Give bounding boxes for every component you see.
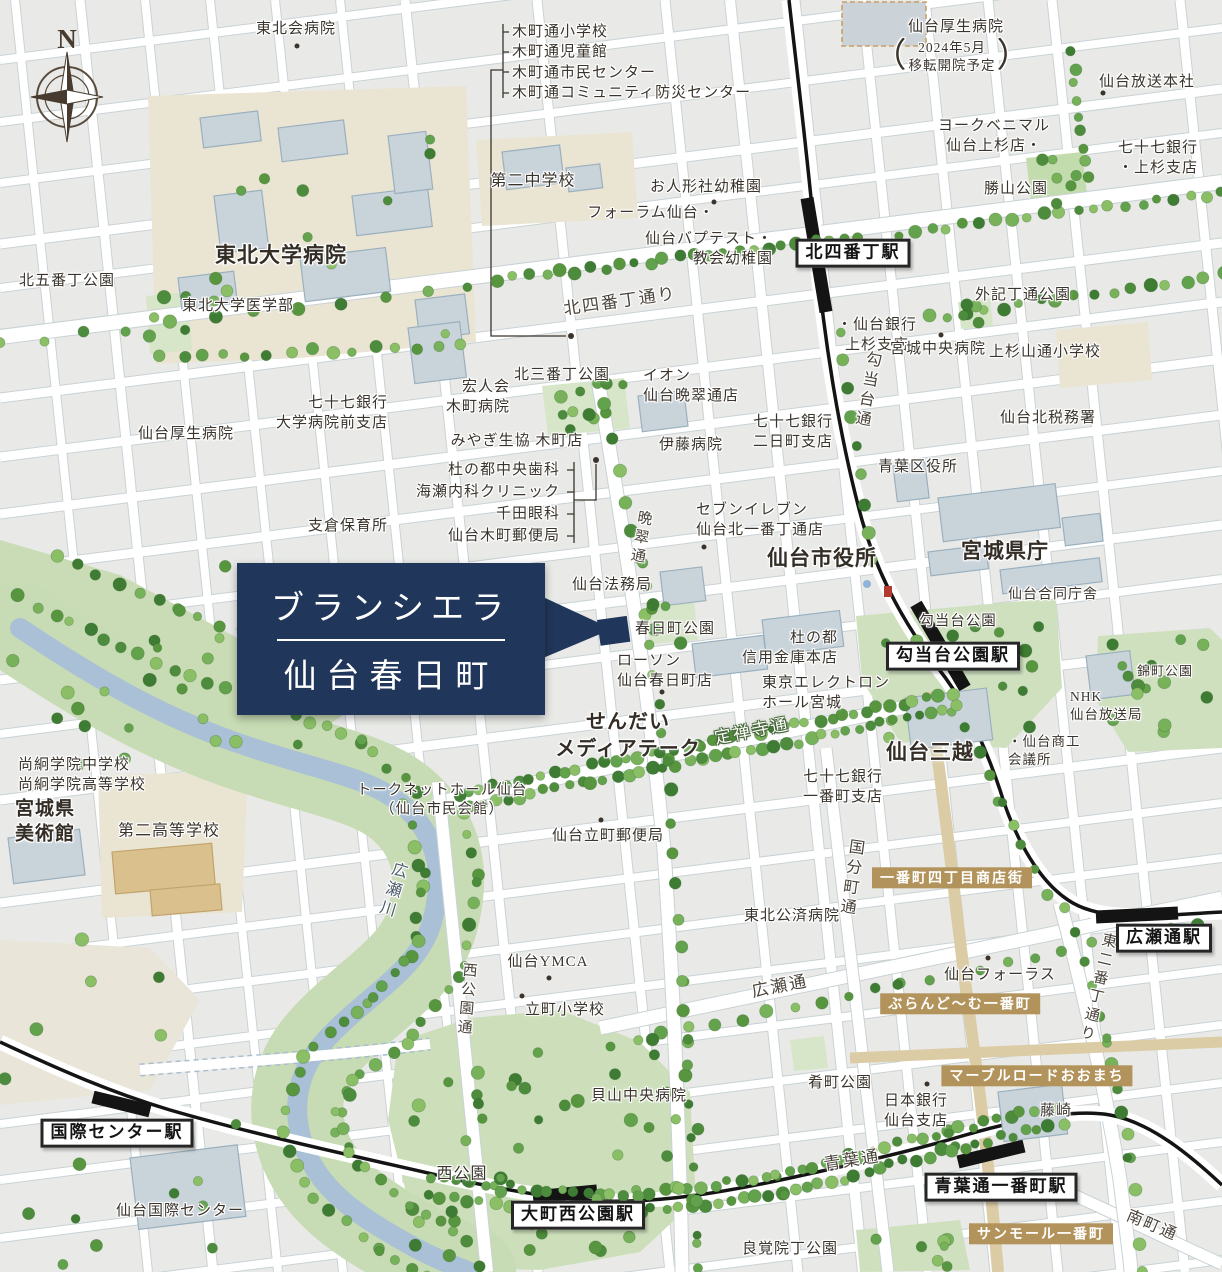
arc-marble-road-omachi-badge: マーブルロードおおまち — [941, 1065, 1132, 1086]
clinics-group-dot — [593, 457, 599, 463]
sta-omachi-nishikoen-badge: 大町西公園駅 — [511, 1201, 645, 1230]
property-marker — [597, 616, 630, 646]
compass-n-label: N — [57, 24, 77, 54]
kimachi-group-dot — [568, 333, 574, 339]
sta-aobadori-ichibancho-badge: 青葉通一番町駅 — [925, 1173, 1078, 1202]
sta-kita-yobancho-badge: 北四番丁駅 — [796, 239, 911, 268]
station-mark-2 — [1096, 913, 1178, 917]
sta-kokusai-center-badge: 国際センター駅 — [41, 1119, 194, 1148]
arc-sunmall-ichibancho-badge: サンモール一番町 — [969, 1223, 1113, 1244]
map-stage: N 東北会病院仙台厚生病院（2024年5月移転開院予定）仙台放送本社ヨークベニマ… — [0, 0, 1222, 1272]
property-callout-divider — [277, 639, 505, 641]
arc-brandome-ichibancho-badge: ぶらんど〜む一番町 — [880, 993, 1040, 1014]
property-callout-name: 仙台春日町 — [284, 649, 499, 697]
arc-ichibancho-yonchome-badge: 一番町四丁目商店街 — [872, 867, 1032, 888]
property-callout: ブランシエラ 仙台春日町 — [237, 563, 545, 715]
property-callout-brand: ブランシエラ — [271, 581, 511, 629]
sta-kotodai-koen-badge: 勾当台公園駅 — [886, 642, 1020, 671]
planned-hospital-site — [842, 2, 926, 46]
sta-hirose-dori-badge: 広瀬通駅 — [1116, 924, 1212, 953]
